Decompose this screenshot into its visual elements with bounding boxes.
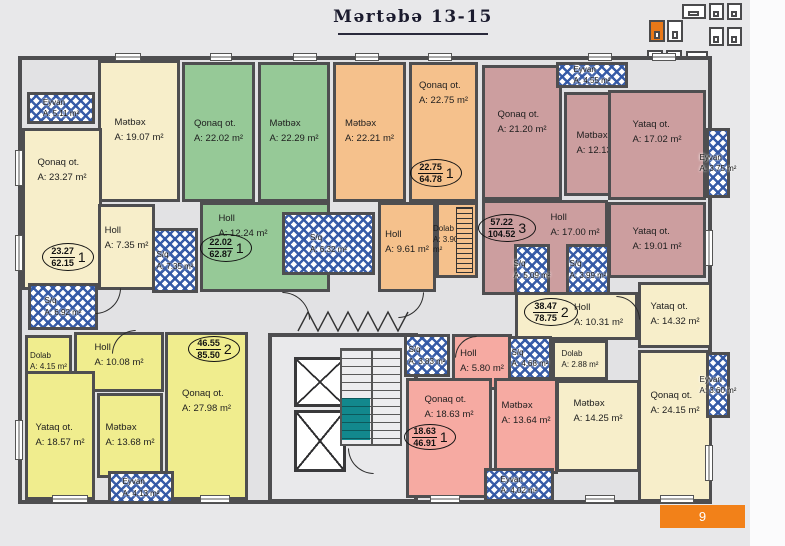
page-number-badge: 9	[660, 505, 745, 528]
hatch-name-label: S/q	[310, 232, 347, 243]
room-holl: HollA: 9.61 m²	[378, 202, 436, 292]
window-mark	[355, 53, 379, 61]
hatch-area-label: A: 3.83 m²	[409, 356, 446, 367]
room-yataq-ot: Yataq ot.A: 17.02 m²	[608, 90, 706, 200]
balcony-area: EyvanA: 4.02 m²	[484, 468, 554, 502]
hatch-area-label: A: 5.11 m²	[43, 108, 79, 119]
room-metbex: MətbəxA: 14.25 m²	[556, 380, 640, 472]
unit-living-area: 22.02	[208, 237, 233, 248]
room-label: MətbəxA: 22.21 m²	[345, 117, 394, 146]
window-mark	[52, 495, 88, 503]
room-area-label: A: 9.61 m²	[385, 243, 429, 258]
stair-divider	[371, 350, 373, 444]
unit-area-fraction: 23.2762.15	[50, 246, 75, 267]
hatch-label: S/qA: 6.92 m²	[45, 295, 82, 317]
room-name-label: Mətbəx	[573, 397, 622, 412]
room-metbex: MətbəxA: 19.07 m²	[98, 60, 180, 202]
unit-area-fraction: 57.22104.52	[488, 217, 516, 238]
room-name-label: Yataq ot.	[632, 118, 681, 133]
window-mark	[428, 53, 452, 61]
unit-room-count: 1	[440, 429, 448, 445]
room-name-label: Dolab	[30, 351, 67, 362]
room-area-label: A: 23.27 m²	[37, 171, 86, 186]
hatch-label: EyvanA: 3.75 m²	[700, 152, 737, 174]
room-area-label: A: 22.75 m²	[419, 94, 468, 109]
unit-area-fraction: 18.6346.91	[412, 426, 437, 447]
room-label: DolabA: 4.15 m²	[30, 351, 67, 373]
hatch-area-label: A: 3.99 m²	[570, 270, 607, 281]
hatch-area-label: A: 5.09 m²	[514, 270, 551, 281]
room-label: MətbəxA: 19.07 m²	[114, 116, 163, 145]
balcony-area: EyvanA: 5.11 m²	[27, 92, 95, 124]
unit-area-badge: 18.6346.911	[404, 424, 456, 450]
room-label: HollA: 7.35 m²	[105, 224, 149, 253]
room-name-label: Dolab	[562, 349, 599, 360]
hatch-label: EyvanA: 4.02 m²	[501, 474, 538, 496]
room-qonaq-ot: Qonaq ot.A: 21.20 m²	[482, 65, 562, 200]
unit-room-count: 1	[236, 240, 244, 256]
hatch-name-label: S/q	[570, 258, 607, 269]
room-metbex: MətbəxA: 22.21 m²	[333, 62, 406, 202]
hatch-name-label: S/q	[157, 249, 194, 260]
bathroom-area: S/qA: 6.32 m²	[282, 212, 375, 275]
room-label: MətbəxA: 13.64 m²	[501, 399, 550, 428]
balcony-area: EyvanA: 4.13 m²	[108, 471, 174, 504]
room-area-label: A: 13.64 m²	[501, 414, 550, 429]
room-name-label: Qonaq ot.	[424, 393, 473, 408]
closet-shelves	[456, 207, 473, 273]
unit-total-area: 104.52	[488, 229, 516, 239]
room-area-label: A: 10.08 m²	[94, 356, 143, 371]
room-name-label: Qonaq ot.	[419, 79, 468, 94]
elevator-shaft	[294, 410, 346, 472]
unit-area-fraction: 38.4778.75	[533, 301, 558, 322]
room-name-label: Qonaq ot.	[182, 387, 231, 402]
room-area-label: A: 18.57 m²	[35, 436, 84, 451]
room-name-label: Holl	[385, 228, 429, 243]
unit-living-area: 23.27	[50, 246, 75, 257]
hatch-name-label: Eyvan	[700, 152, 737, 163]
bathroom-area: S/qA: 6.92 m²	[28, 283, 98, 330]
unit-total-area: 78.75	[534, 313, 557, 323]
room-label: Qonaq ot.A: 18.63 m²	[424, 393, 473, 422]
room-label: Qonaq ot.A: 22.02 m²	[194, 117, 243, 146]
room-area-label: A: 19.07 m²	[114, 131, 163, 146]
window-mark	[660, 495, 694, 503]
hatch-label: S/qA: 7.35 m²	[157, 249, 194, 271]
room-area-label: A: 2.88 m²	[562, 360, 599, 371]
window-mark	[705, 230, 713, 266]
elevator-shaft	[294, 357, 346, 407]
hatch-area-label: A: 3.75 m²	[700, 163, 737, 174]
unit-living-area: 22.75	[418, 162, 443, 173]
room-dolab: DolabA: 2.88 m²	[552, 340, 608, 380]
unit-area-badge: 46.5585.502	[188, 336, 240, 362]
bathroom-area: S/qA: 7.35 m²	[152, 228, 198, 293]
hatch-name-label: S/q	[409, 344, 446, 355]
room-name-label: Qonaq ot.	[497, 108, 546, 123]
room-name-label: Holl	[105, 224, 149, 239]
unit-total-area: 46.91	[413, 438, 436, 448]
room-qonaq-ot: Qonaq ot.A: 22.02 m²	[182, 62, 255, 202]
room-area-label: A: 17.00 m²	[550, 226, 599, 241]
unit-living-area: 46.55	[196, 338, 221, 349]
room-name-label: Mətbəx	[269, 117, 318, 132]
unit-total-area: 62.87	[209, 249, 232, 259]
window-mark	[293, 53, 317, 61]
balcony-area: EyvanA: 3.60 m²	[706, 352, 730, 418]
floor-plan: MətbəxA: 19.07 m²Qonaq ot.A: 23.27 m²Hol…	[0, 0, 785, 546]
hatch-area-label: A: 6.92 m²	[45, 307, 82, 318]
unit-area-fraction: 22.0262.87	[208, 237, 233, 258]
window-mark	[705, 445, 713, 481]
unit-total-area: 85.50	[197, 350, 220, 360]
window-mark	[115, 53, 141, 61]
unit-room-count: 2	[224, 341, 232, 357]
window-mark	[588, 53, 612, 61]
hatch-name-label: Eyvan	[501, 474, 538, 485]
room-name-label: Holl	[550, 211, 599, 226]
balcony-area: EyvanA: 3.75 m²	[706, 128, 730, 198]
hatch-name-label: Eyvan	[43, 97, 79, 108]
room-area-label: A: 22.29 m²	[269, 132, 318, 147]
stair-flight-highlight	[342, 398, 370, 440]
hatch-label: EyvanA: 4.55 m²	[574, 64, 611, 86]
room-label: DolabA: 2.88 m²	[562, 349, 599, 371]
room-area-label: A: 5.80 m²	[460, 362, 504, 377]
room-area-label: A: 18.63 m²	[424, 408, 473, 423]
room-label: MətbəxA: 13.68 m²	[105, 421, 154, 450]
room-yataq-ot: Yataq ot.A: 18.57 m²	[25, 371, 95, 500]
hatch-label: S/qA: 3.99 m²	[570, 258, 607, 280]
room-name-label: Mətbəx	[345, 117, 394, 132]
hatch-label: S/qA: 3.83 m²	[409, 344, 446, 366]
room-name-label: Mətbəx	[501, 399, 550, 414]
bathroom-area: S/qA: 4.68 m²	[508, 336, 552, 380]
unit-room-count: 1	[446, 165, 454, 181]
room-label: Yataq ot.A: 14.32 m²	[650, 300, 699, 329]
unit-living-area: 57.22	[489, 217, 514, 228]
room-holl: HollA: 7.35 m²	[98, 204, 155, 290]
hatch-label: EyvanA: 3.60 m²	[700, 374, 737, 396]
room-name-label: Qonaq ot.	[194, 117, 243, 132]
unit-area-fraction: 46.5585.50	[196, 338, 221, 359]
hatch-name-label: S/q	[514, 258, 551, 269]
room-label: Qonaq ot.A: 22.75 m²	[419, 79, 468, 108]
bathroom-area: S/qA: 3.83 m²	[404, 334, 450, 377]
unit-living-area: 18.63	[412, 426, 437, 437]
room-label: Yataq ot.A: 19.01 m²	[632, 225, 681, 254]
room-label: HollA: 9.61 m²	[385, 228, 429, 257]
room-name-label: Yataq ot.	[35, 421, 84, 436]
room-area-label: A: 27.98 m²	[182, 402, 231, 417]
room-name-label: Yataq ot.	[632, 225, 681, 240]
room-name-label: Mətbəx	[114, 116, 163, 131]
window-mark	[15, 420, 23, 460]
room-area-label: A: 13.68 m²	[105, 436, 154, 451]
room-area-label: A: 7.35 m²	[105, 239, 149, 254]
room-name-label: Qonaq ot.	[650, 389, 699, 404]
window-mark	[200, 495, 230, 503]
room-label: Yataq ot.A: 17.02 m²	[632, 118, 681, 147]
bathroom-area: S/qA: 3.99 m²	[566, 244, 610, 295]
unit-area-fraction: 22.7564.78	[418, 162, 443, 183]
hatch-area-label: A: 4.13 m²	[123, 488, 160, 499]
hatch-area-label: A: 4.68 m²	[512, 358, 549, 369]
unit-total-area: 64.78	[419, 174, 442, 184]
hatch-label: S/qA: 5.09 m²	[514, 258, 551, 280]
room-metbex: MətbəxA: 22.29 m²	[258, 62, 330, 202]
room-area-label: A: 22.02 m²	[194, 132, 243, 147]
hatch-name-label: S/q	[45, 295, 82, 306]
hatch-area-label: A: 6.32 m²	[310, 244, 347, 255]
unit-living-area: 38.47	[533, 301, 558, 312]
room-name-label: Holl	[218, 212, 267, 227]
window-mark	[652, 53, 676, 61]
hatch-name-label: S/q	[512, 347, 549, 358]
unit-area-badge: 23.2762.151	[42, 243, 94, 271]
unit-area-badge: 38.4778.752	[524, 298, 578, 326]
staircase	[340, 348, 402, 446]
room-area-label: A: 19.01 m²	[632, 240, 681, 255]
unit-room-count: 1	[78, 249, 86, 265]
hatch-label: EyvanA: 4.13 m²	[123, 476, 160, 498]
unit-area-badge: 22.0262.871	[200, 234, 252, 262]
room-label: MətbəxA: 14.25 m²	[573, 397, 622, 426]
room-area-label: A: 21.20 m²	[497, 123, 546, 138]
room-label: MətbəxA: 22.29 m²	[269, 117, 318, 146]
room-label: HollA: 17.00 m²	[550, 211, 599, 240]
hatch-area-label: A: 4.55 m²	[574, 75, 611, 86]
unit-area-badge: 57.22104.523	[478, 214, 536, 242]
unit-total-area: 62.15	[51, 258, 74, 268]
room-metbex: MətbəxA: 13.68 m²	[97, 393, 163, 478]
unit-room-count: 3	[518, 220, 526, 236]
room-area-label: A: 22.21 m²	[345, 132, 394, 147]
hatch-area-label: A: 4.02 m²	[501, 485, 538, 496]
room-area-label: A: 14.25 m²	[573, 412, 622, 427]
room-yataq-ot: Yataq ot.A: 19.01 m²	[608, 202, 706, 278]
room-area-label: A: 24.15 m²	[650, 404, 699, 419]
hatch-label: S/qA: 6.32 m²	[310, 232, 347, 254]
hatch-label: S/qA: 4.68 m²	[512, 347, 549, 369]
room-name-label: Mətbəx	[105, 421, 154, 436]
entrance-door-symbols	[296, 309, 412, 333]
hatch-area-label: A: 7.35 m²	[157, 261, 194, 272]
room-name-label: Qonaq ot.	[37, 156, 86, 171]
room-label: Qonaq ot.A: 23.27 m²	[37, 156, 86, 185]
room-area-label: A: 14.32 m²	[650, 315, 699, 330]
window-mark	[585, 495, 615, 503]
room-yataq-ot: Yataq ot.A: 14.32 m²	[638, 282, 712, 348]
hatch-label: EyvanA: 5.11 m²	[43, 97, 79, 119]
balcony-area: EyvanA: 4.55 m²	[556, 62, 628, 88]
hatch-area-label: A: 3.60 m²	[700, 385, 737, 396]
room-area-label: A: 17.02 m²	[632, 133, 681, 148]
hatch-name-label: Eyvan	[574, 64, 611, 75]
room-label: Yataq ot.A: 18.57 m²	[35, 421, 84, 450]
hatch-name-label: Eyvan	[123, 476, 160, 487]
window-mark	[15, 150, 23, 186]
room-metbex: MətbəxA: 13.64 m²	[494, 378, 558, 474]
window-mark	[15, 235, 23, 271]
room-name-label: Yataq ot.	[650, 300, 699, 315]
window-mark	[210, 53, 232, 61]
room-label: Qonaq ot.A: 27.98 m²	[182, 387, 231, 416]
unit-room-count: 2	[561, 304, 569, 320]
room-dolab: DolabA: 3.90 m²	[436, 202, 478, 278]
room-label: Qonaq ot.A: 24.15 m²	[650, 389, 699, 418]
unit-area-badge: 22.7564.781	[410, 159, 462, 187]
room-label: Qonaq ot.A: 21.20 m²	[497, 108, 546, 137]
window-mark	[430, 495, 460, 503]
bathroom-area: S/qA: 5.09 m²	[514, 244, 550, 295]
room-qonaq-ot: Qonaq ot.A: 24.15 m²	[638, 350, 712, 502]
hatch-name-label: Eyvan	[700, 374, 737, 385]
